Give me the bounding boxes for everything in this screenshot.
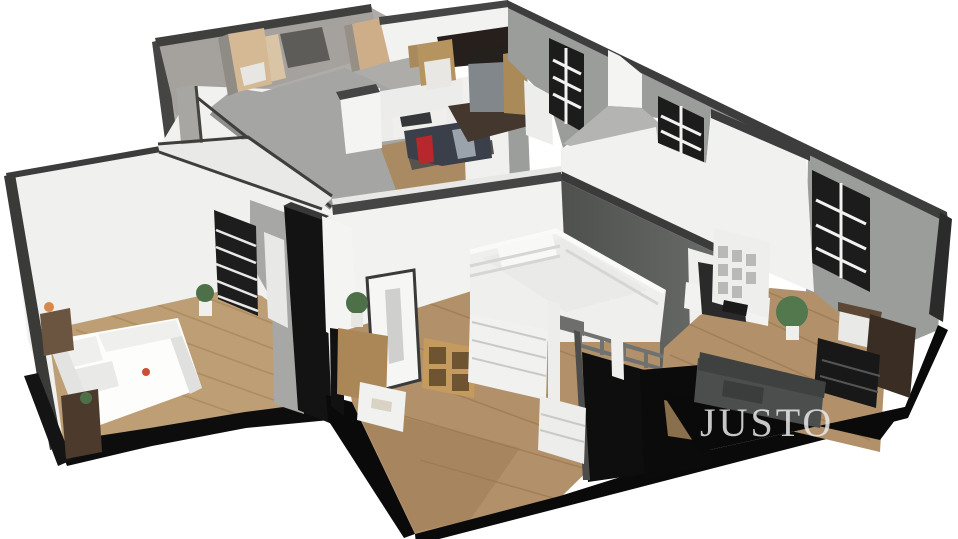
svg-text:JUSTO: JUSTO xyxy=(700,400,834,445)
